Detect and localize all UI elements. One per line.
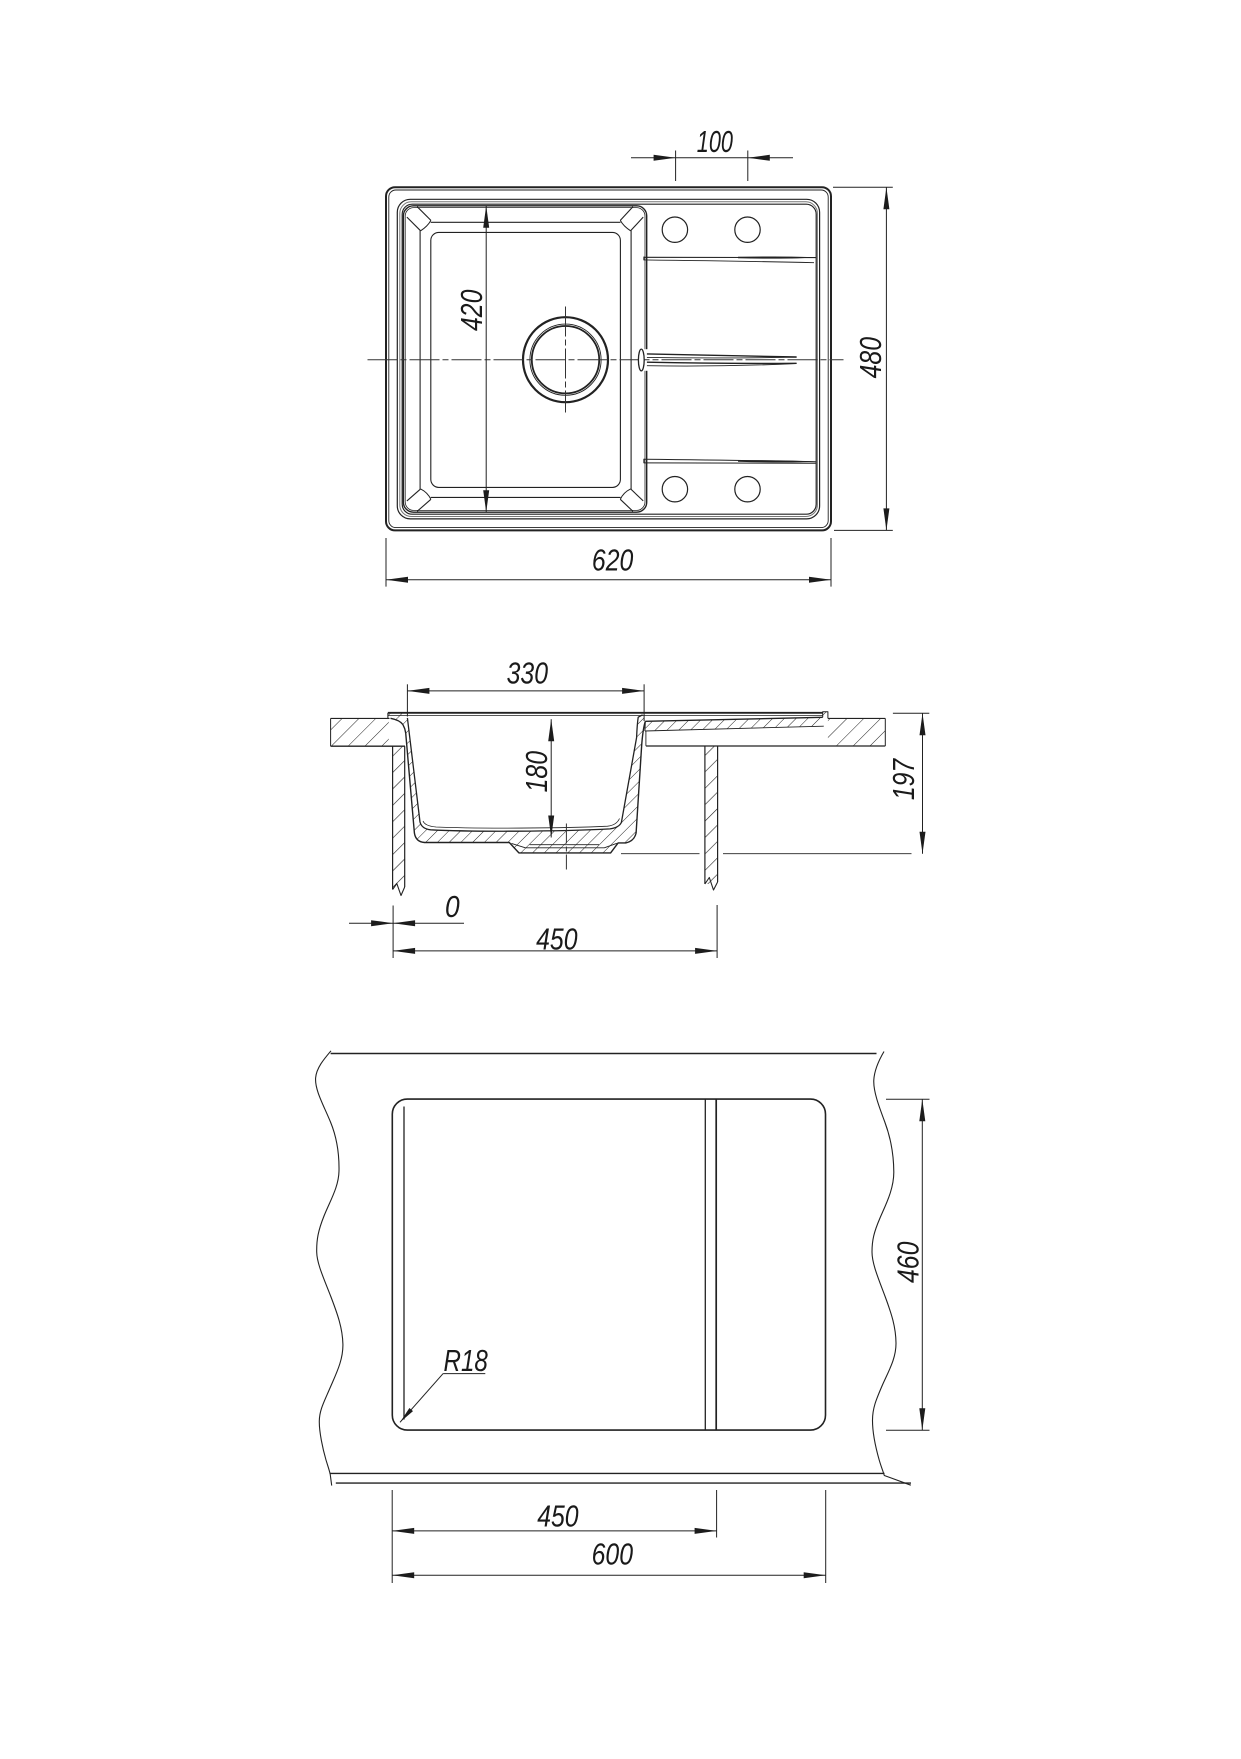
svg-text:R18: R18 <box>444 1343 489 1378</box>
svg-text:180: 180 <box>519 751 553 793</box>
svg-text:330: 330 <box>507 656 549 690</box>
svg-text:480: 480 <box>853 337 887 379</box>
svg-text:460: 460 <box>891 1241 925 1283</box>
svg-text:197: 197 <box>886 758 920 801</box>
svg-text:420: 420 <box>454 289 488 331</box>
svg-text:620: 620 <box>592 543 634 577</box>
svg-text:0: 0 <box>445 890 460 924</box>
svg-text:450: 450 <box>537 1499 579 1533</box>
svg-text:450: 450 <box>536 922 578 956</box>
svg-text:100: 100 <box>697 124 733 159</box>
svg-text:600: 600 <box>592 1537 634 1571</box>
